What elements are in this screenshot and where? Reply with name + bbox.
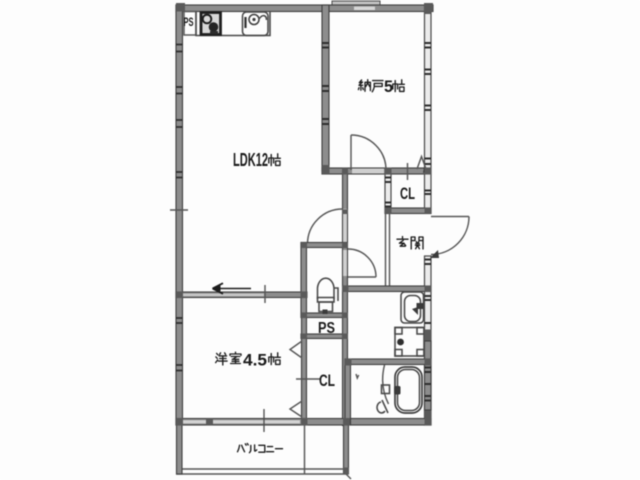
svg-text:PS: PS xyxy=(184,15,194,29)
svg-text:5: 5 xyxy=(384,77,393,96)
svg-text:CL: CL xyxy=(319,371,335,390)
svg-text:LDK12: LDK12 xyxy=(233,150,268,170)
svg-text:4.5: 4.5 xyxy=(243,351,267,370)
svg-text:CL: CL xyxy=(400,184,415,203)
svg-text:PS: PS xyxy=(318,320,335,337)
